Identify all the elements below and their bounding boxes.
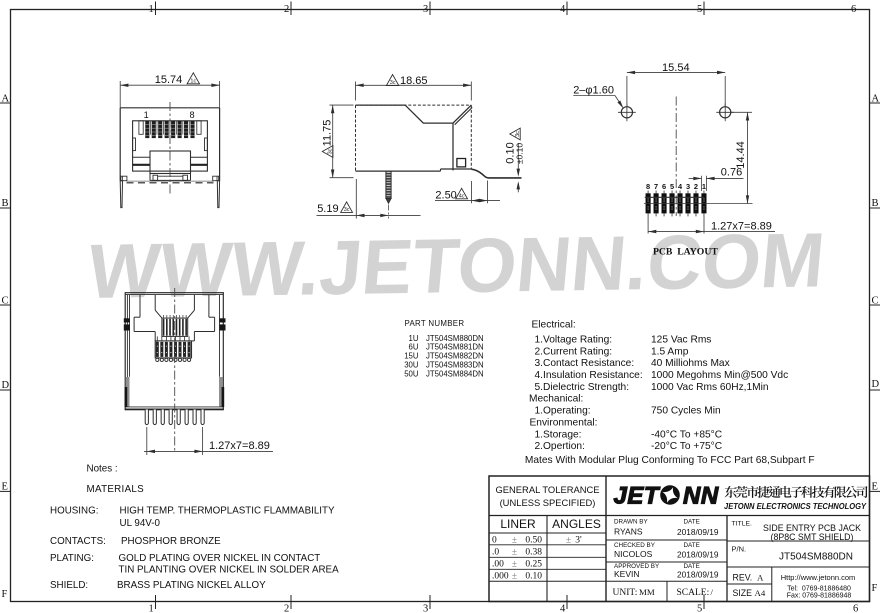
svg-text:4: 4 (560, 604, 566, 613)
svg-text:14.44: 14.44 (735, 141, 747, 169)
svg-text:1: 1 (144, 110, 149, 120)
svg-text:5: 5 (670, 182, 674, 191)
svg-text:-20°C To +75°C: -20°C To +75°C (651, 441, 722, 452)
svg-text:JT504SM884DN: JT504SM884DN (426, 369, 484, 378)
svg-text:(8P8C SMT SHIELD): (8P8C SMT SHIELD) (771, 532, 854, 542)
svg-text:1U: 1U (409, 334, 419, 343)
svg-text:0.38: 0.38 (525, 547, 542, 557)
svg-text:REV.: REV. (733, 572, 753, 582)
svg-text:PART NUMBER: PART NUMBER (405, 319, 465, 328)
svg-text:Fax: 0769-81886948: Fax: 0769-81886948 (787, 593, 852, 600)
svg-text:3: 3 (686, 182, 690, 191)
svg-text:±: ± (512, 560, 517, 570)
svg-text:4c: 4c (459, 193, 465, 199)
svg-text:(UNLESS SPECIFIED): (UNLESS SPECIFIED) (500, 497, 596, 508)
svg-text:DATE: DATE (684, 519, 700, 526)
svg-text:1: 1 (149, 4, 154, 15)
svg-text:15U: 15U (404, 352, 419, 361)
svg-text:2018/09/19: 2018/09/19 (677, 527, 719, 537)
svg-text:2: 2 (284, 604, 289, 613)
svg-text:3c: 3c (344, 207, 350, 213)
svg-text:18.65: 18.65 (400, 75, 428, 87)
svg-text:8: 8 (189, 110, 194, 120)
svg-text:TIN PLANTING OVER NICKEL IN SO: TIN PLANTING OVER NICKEL IN SOLDER AREA (119, 565, 340, 576)
svg-text:±0.10: ±0.10 (515, 143, 525, 164)
svg-text:0.25: 0.25 (525, 560, 542, 570)
svg-text:4.Insulation Resistance:: 4.Insulation Resistance: (535, 370, 643, 381)
svg-text:3c: 3c (515, 131, 521, 137)
svg-text:.00: .00 (492, 560, 504, 570)
svg-text:A: A (872, 94, 880, 105)
svg-text:HIGH TEMP. THERMOPLASTIC FLAMM: HIGH TEMP. THERMOPLASTIC FLAMMABILITY (120, 506, 335, 517)
svg-text:PLATING:: PLATING: (50, 553, 94, 564)
svg-text:GOLD PLATING OVER NICKEL IN CO: GOLD PLATING OVER NICKEL IN CONTACT (119, 553, 321, 564)
svg-text:6: 6 (662, 182, 666, 191)
svg-text:UL 94V-0: UL 94V-0 (120, 518, 161, 529)
svg-text:NICOLOS: NICOLOS (614, 549, 653, 559)
svg-text:Environmental:: Environmental: (530, 417, 598, 428)
svg-text:±: ± (512, 572, 517, 582)
svg-text:2: 2 (284, 4, 289, 15)
svg-text:2.50: 2.50 (435, 189, 456, 201)
svg-text:Electrical:: Electrical: (532, 319, 576, 330)
svg-text:JT504SM882DN: JT504SM882DN (426, 352, 484, 361)
svg-text:30U: 30U (404, 361, 419, 370)
svg-text:40 Milliohms Max: 40 Milliohms Max (651, 358, 730, 369)
svg-text:A: A (757, 572, 764, 582)
svg-text:3': 3' (575, 535, 582, 545)
svg-text:MATERIALS: MATERIALS (87, 484, 145, 495)
svg-text:5.19: 5.19 (317, 203, 338, 215)
svg-text:2: 2 (694, 182, 698, 191)
svg-text:1.27x7=8.89: 1.27x7=8.89 (711, 221, 772, 233)
svg-text:3.Contact Resistance:: 3.Contact Resistance: (535, 358, 635, 369)
svg-text:SCALE:: SCALE: (677, 588, 710, 598)
svg-text:UNIT:: UNIT: (613, 588, 638, 598)
svg-text:1.27x7=8.89: 1.27x7=8.89 (209, 440, 270, 452)
svg-text:3c: 3c (390, 80, 396, 86)
svg-text:0.50: 0.50 (525, 535, 542, 545)
svg-text:NN: NN (683, 483, 719, 510)
svg-text:0: 0 (492, 535, 497, 545)
svg-text:8: 8 (646, 182, 650, 191)
svg-text:6U: 6U (409, 343, 419, 352)
svg-text:2018/09/19: 2018/09/19 (677, 570, 719, 580)
svg-text:±: ± (512, 535, 517, 545)
svg-text:.000: .000 (492, 572, 509, 582)
svg-text:CHECKED BY: CHECKED BY (614, 542, 656, 549)
svg-text:6: 6 (851, 4, 856, 15)
svg-text:±: ± (566, 535, 571, 545)
svg-text:JT504SM881DN: JT504SM881DN (426, 343, 484, 352)
svg-text:SIZE: SIZE (733, 588, 753, 598)
svg-text:D: D (872, 379, 880, 390)
svg-text:2.Current Rating:: 2.Current Rating: (535, 346, 613, 357)
svg-text:750 Cycles Min: 750 Cycles Min (651, 406, 721, 417)
svg-text:A: A (2, 94, 10, 105)
svg-text:1.Storage:: 1.Storage: (535, 429, 582, 440)
svg-text:5.Dielectric Strength:: 5.Dielectric Strength: (535, 382, 630, 393)
svg-text:±: ± (512, 547, 517, 557)
svg-text:4: 4 (560, 4, 566, 15)
svg-text:E: E (2, 482, 8, 493)
svg-text:2.Opertion:: 2.Opertion: (535, 441, 585, 452)
svg-text:.0: .0 (492, 547, 499, 557)
svg-text:HOUSING:: HOUSING: (50, 506, 98, 517)
svg-text:JET: JET (614, 483, 661, 510)
svg-text:F: F (2, 589, 8, 600)
svg-text:JETONN ELECTRONICS TECHNOLOGY: JETONN ELECTRONICS TECHNOLOGY (724, 501, 867, 511)
svg-text:SHIELD:: SHIELD: (50, 580, 88, 591)
svg-text:D: D (2, 380, 10, 391)
svg-text:PHOSPHOR BRONZE: PHOSPHOR BRONZE (121, 536, 221, 547)
svg-text:15.74: 15.74 (155, 74, 183, 86)
svg-text:1: 1 (702, 182, 706, 191)
svg-text:Mechanical:: Mechanical: (529, 394, 583, 405)
svg-text:1.Voltage Rating:: 1.Voltage Rating: (535, 334, 613, 345)
svg-text:3c: 3c (327, 148, 333, 154)
svg-text:1c: 1c (190, 78, 196, 84)
svg-text:Tel: 0769-81886480: Tel: 0769-81886480 (787, 585, 851, 592)
svg-text:F: F (872, 583, 878, 594)
svg-text:CONTACTS:: CONTACTS: (50, 536, 106, 547)
svg-text:JT504SM880DN: JT504SM880DN (426, 334, 484, 343)
svg-text:11.75: 11.75 (322, 120, 334, 147)
svg-text:GENERAL TOLERANCE: GENERAL TOLERANCE (495, 484, 599, 495)
svg-text:1.Operating:: 1.Operating: (535, 406, 591, 417)
svg-text:B: B (872, 198, 879, 209)
svg-text:2–φ1.60: 2–φ1.60 (573, 84, 614, 96)
svg-text:ANGLES: ANGLES (552, 517, 601, 531)
svg-text:B: B (2, 198, 9, 209)
svg-text:DATE: DATE (684, 542, 700, 549)
svg-text:15.54: 15.54 (662, 62, 690, 74)
svg-text:0.10: 0.10 (525, 572, 542, 582)
svg-text:7: 7 (654, 182, 658, 191)
svg-text:C: C (2, 296, 9, 307)
svg-text:50U: 50U (404, 369, 419, 378)
svg-text:3: 3 (423, 4, 428, 15)
svg-text:125 Vac Rms: 125 Vac Rms (651, 334, 711, 345)
svg-text:C: C (872, 296, 879, 307)
svg-text:3: 3 (423, 604, 428, 613)
svg-text:Mates With Modular Plug Confor: Mates With Modular Plug Conforming To FC… (525, 455, 815, 466)
svg-text:Notes :: Notes : (87, 464, 118, 475)
svg-text:P/N.: P/N. (732, 545, 747, 554)
svg-text:5: 5 (697, 604, 702, 613)
svg-text:5: 5 (697, 4, 702, 15)
svg-text:JT504SM880DN: JT504SM880DN (779, 551, 853, 562)
svg-text:E: E (872, 482, 878, 493)
svg-text:MM: MM (639, 587, 655, 597)
svg-text:BRASS PLATING NICKEL ALLOY: BRASS PLATING NICKEL ALLOY (117, 580, 266, 591)
svg-text:6: 6 (853, 604, 858, 613)
svg-text:1: 1 (149, 604, 154, 613)
svg-text:1000 Megohms Min@500 Vdc: 1000 Megohms Min@500 Vdc (651, 370, 788, 381)
svg-text:KEVIN: KEVIN (614, 569, 640, 579)
svg-text:DRAWN BY: DRAWN BY (614, 519, 649, 526)
svg-text:2018/09/19: 2018/09/19 (677, 549, 719, 559)
svg-text:RYANS: RYANS (614, 527, 643, 537)
svg-text:TITLE.: TITLE. (732, 521, 753, 528)
svg-text:JT504SM883DN: JT504SM883DN (426, 361, 484, 370)
svg-text:Http://www.jetonn.com: Http://www.jetonn.com (781, 573, 856, 582)
svg-text:1.5 Amp: 1.5 Amp (651, 346, 689, 357)
svg-text:A4: A4 (755, 588, 766, 598)
svg-text:-40°C To +85°C: -40°C To +85°C (651, 429, 722, 440)
svg-text:PCB LAYOUT: PCB LAYOUT (653, 247, 718, 258)
svg-text:LINER: LINER (500, 517, 536, 531)
svg-text:1000 Vac Rms 60Hz,1Min: 1000 Vac Rms 60Hz,1Min (651, 382, 769, 393)
